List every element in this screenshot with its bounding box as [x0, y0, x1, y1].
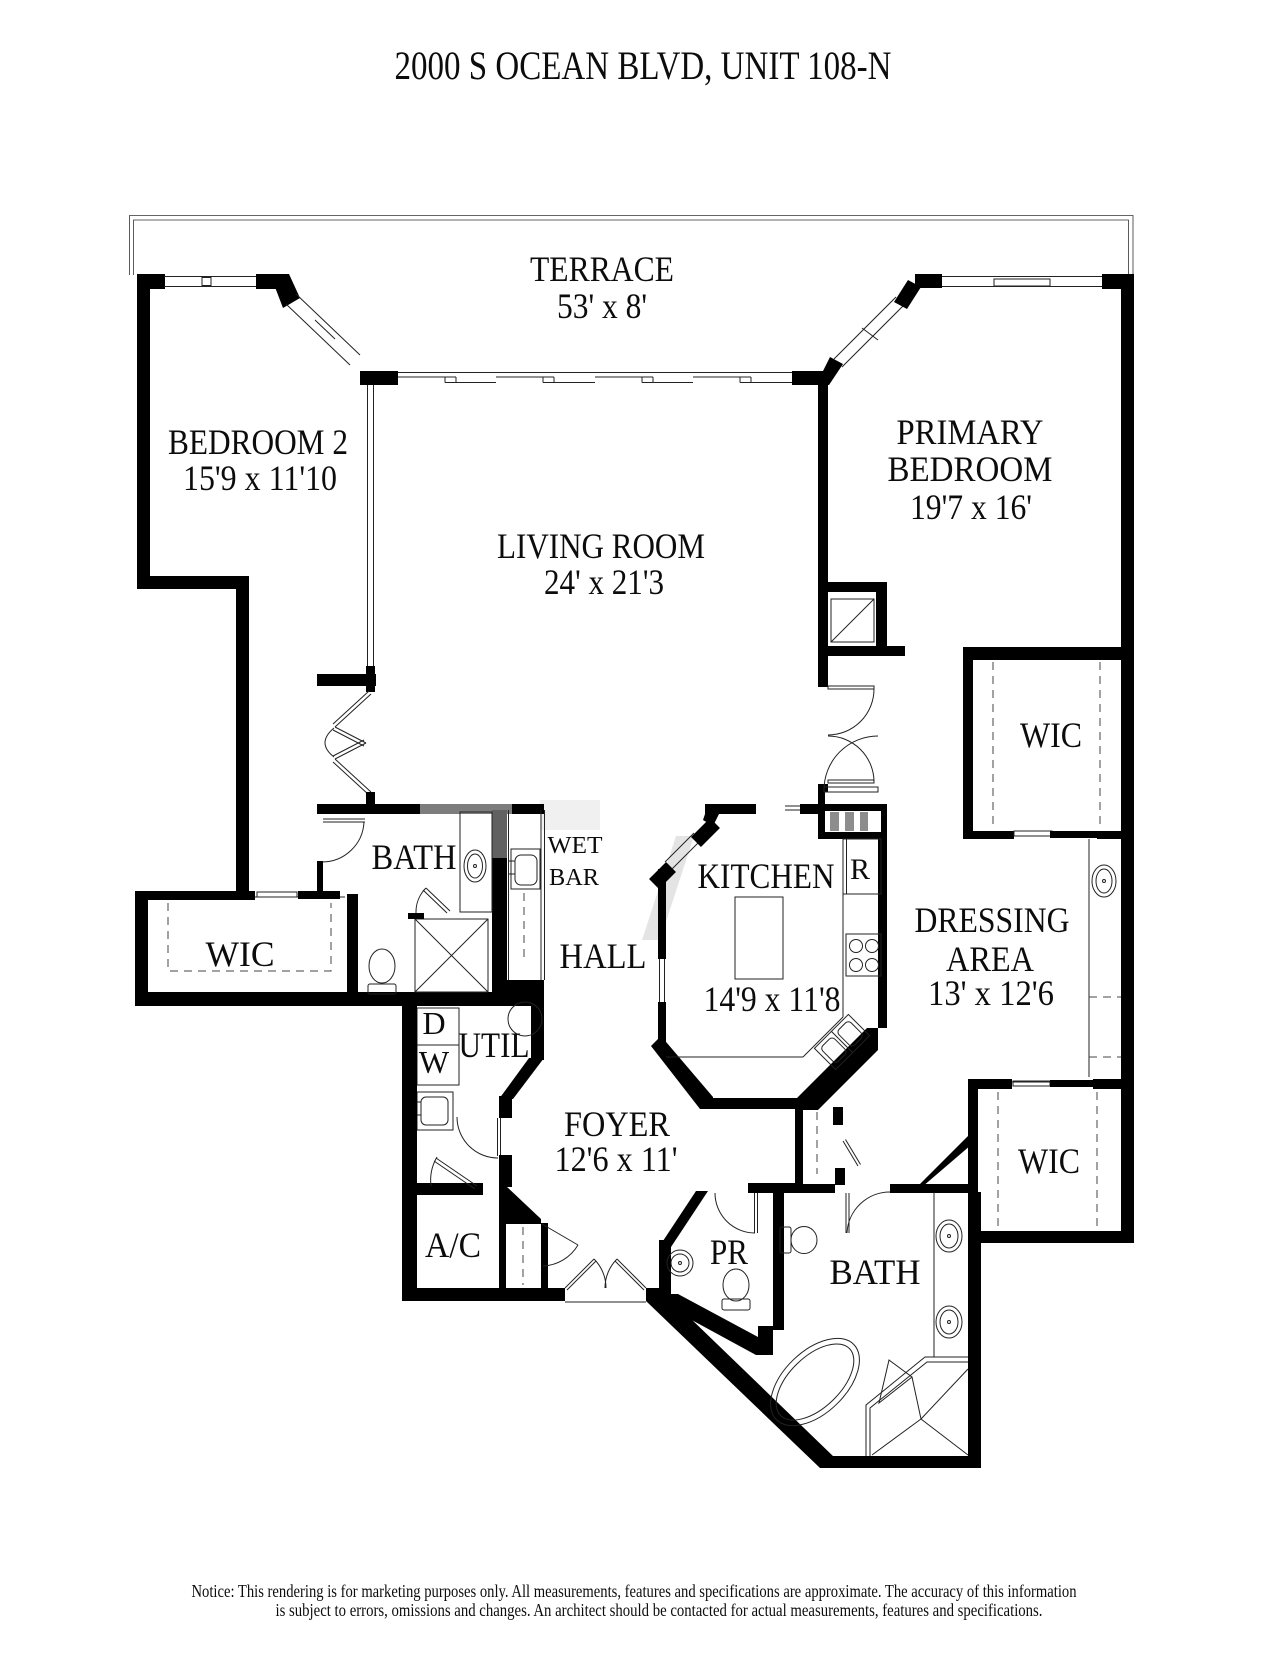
svg-text:13' x 12'6: 13' x 12'6	[928, 973, 1054, 1013]
svg-text:2000 S OCEAN BLVD, UNIT 108-N: 2000 S OCEAN BLVD, UNIT 108-N	[395, 43, 892, 88]
svg-text:D: D	[422, 1005, 445, 1041]
svg-text:BEDROOM 2: BEDROOM 2	[168, 422, 348, 462]
svg-text:DRESSING: DRESSING	[915, 900, 1070, 940]
svg-text:is subject to errors, omission: is subject to errors, omissions and chan…	[276, 1600, 1043, 1620]
svg-text:PRIMARY: PRIMARY	[897, 412, 1044, 452]
svg-text:12'6 x 11': 12'6 x 11'	[555, 1139, 678, 1179]
svg-text:R: R	[850, 853, 870, 886]
svg-text:BATH: BATH	[372, 837, 457, 877]
svg-text:15'9 x 11'10: 15'9 x 11'10	[183, 458, 337, 498]
svg-text:14'9 x 11'8: 14'9 x 11'8	[704, 979, 841, 1019]
svg-text:LIVING ROOM: LIVING ROOM	[497, 526, 705, 566]
svg-text:HALL: HALL	[560, 936, 647, 976]
svg-text:BATH: BATH	[830, 1252, 921, 1292]
svg-text:WIC: WIC	[1020, 715, 1082, 755]
svg-text:WET: WET	[548, 833, 603, 859]
svg-text:WIC: WIC	[1018, 1141, 1080, 1181]
svg-text:WIC: WIC	[206, 934, 275, 974]
svg-text:W: W	[419, 1044, 450, 1080]
svg-text:PR: PR	[710, 1232, 748, 1272]
svg-text:FOYER: FOYER	[564, 1104, 670, 1144]
svg-text:A/C: A/C	[425, 1225, 481, 1265]
svg-text:24' x 21'3: 24' x 21'3	[544, 562, 664, 602]
svg-text:BEDROOM: BEDROOM	[888, 449, 1053, 489]
svg-text:TERRACE: TERRACE	[530, 249, 674, 289]
svg-text:KITCHEN: KITCHEN	[698, 856, 835, 896]
svg-text:UTIL: UTIL	[459, 1025, 530, 1065]
svg-text:53' x 8': 53' x 8'	[557, 286, 647, 326]
svg-text:BAR: BAR	[549, 865, 599, 891]
svg-text:Notice: This rendering is for: Notice: This rendering is for marketing …	[192, 1581, 1077, 1601]
svg-text:19'7 x 16': 19'7 x 16'	[910, 487, 1032, 527]
